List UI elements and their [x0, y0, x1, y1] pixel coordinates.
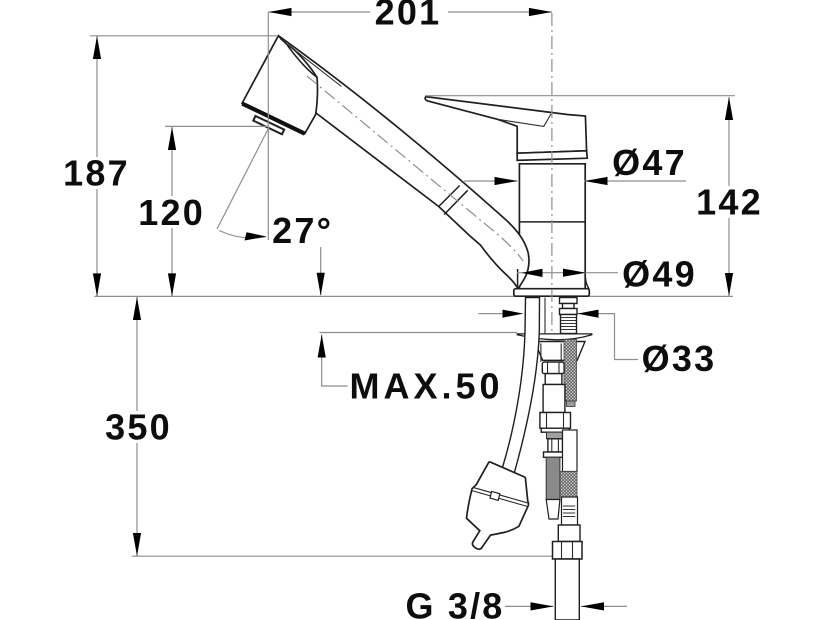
svg-text:G 3/8: G 3/8 — [405, 586, 504, 620]
svg-text:187: 187 — [63, 153, 130, 194]
svg-text:MAX.50: MAX.50 — [350, 366, 504, 407]
svg-text:142: 142 — [696, 182, 763, 223]
svg-text:Ø47: Ø47 — [612, 142, 687, 183]
svg-text:Ø33: Ø33 — [642, 338, 717, 379]
svg-text:120: 120 — [138, 192, 205, 233]
svg-text:201: 201 — [375, 0, 442, 33]
svg-text:27°: 27° — [272, 210, 333, 251]
svg-text:Ø49: Ø49 — [622, 254, 697, 295]
svg-text:350: 350 — [105, 407, 172, 448]
